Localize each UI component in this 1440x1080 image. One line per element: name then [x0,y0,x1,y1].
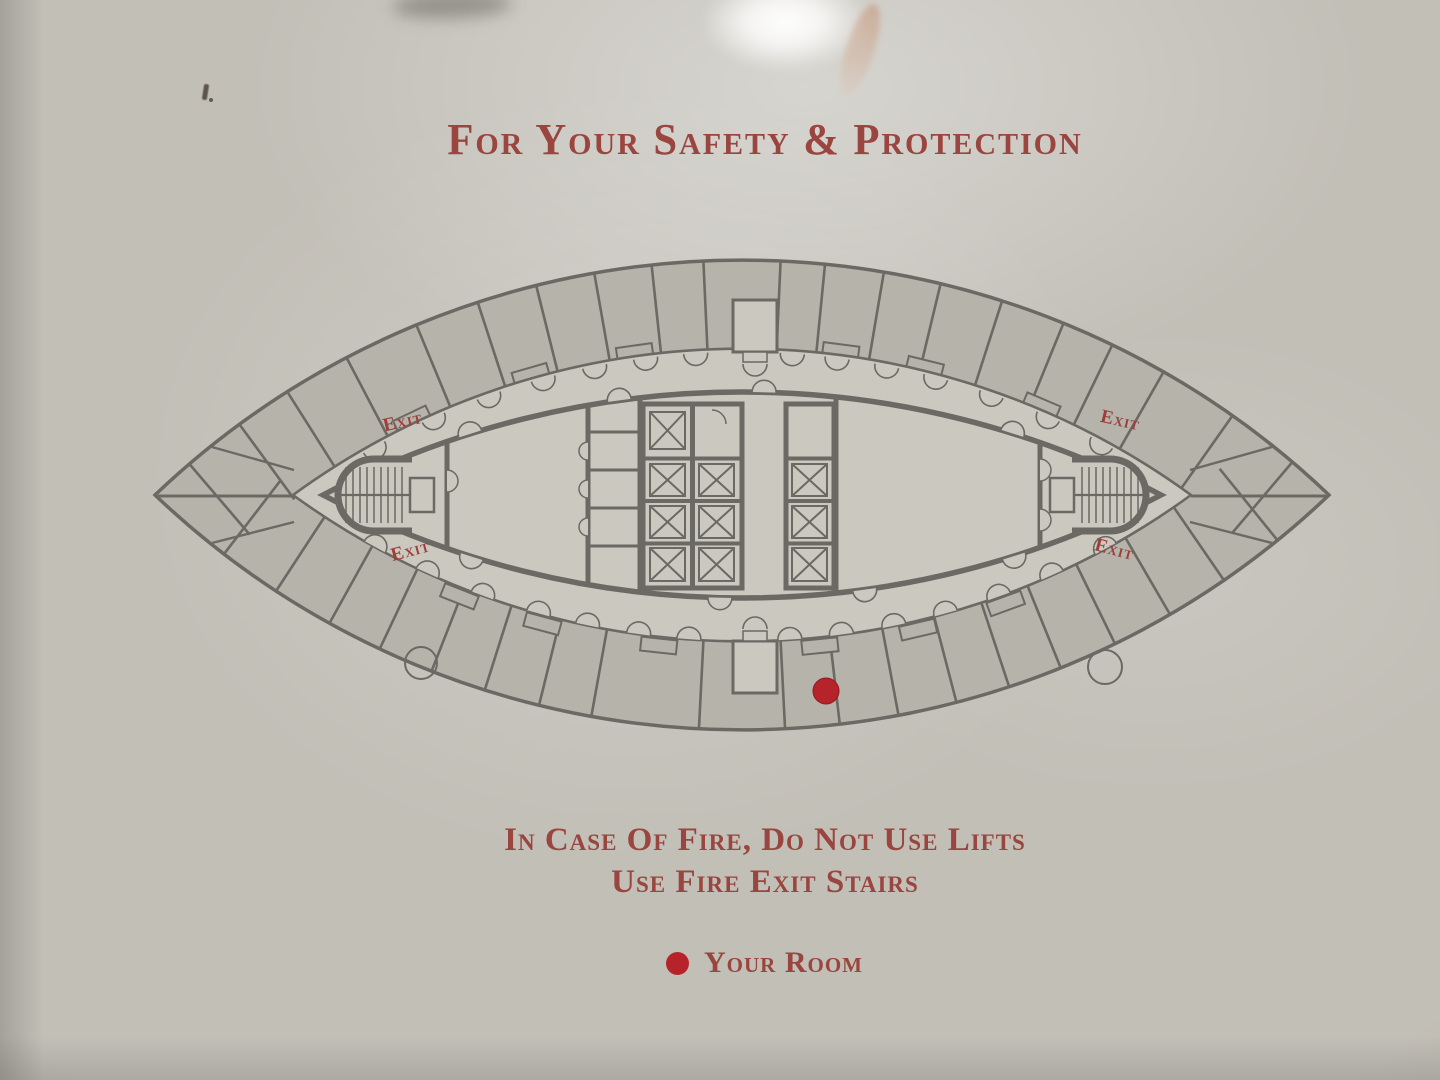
warning-line-2: Use Fire Exit Stairs [90,864,1440,901]
photo-speck [209,98,213,102]
elevator-bank-left [643,404,742,588]
round-fixture-icon [1088,650,1122,684]
elevator-bank-right [786,404,834,588]
legend-room-dot-icon [666,952,689,975]
your-room-marker [813,678,839,704]
warning-line-1: In Case Of Fire, Do Not Use Lifts [90,822,1440,859]
page-title: For Your Safety & Protection [110,114,1420,165]
legend: Your Room [666,941,863,985]
legend-label: Your Room [704,946,863,980]
photographed-safety-sign: Exit Exit Exit Exit For Your Safety & Pr… [0,0,1440,1080]
